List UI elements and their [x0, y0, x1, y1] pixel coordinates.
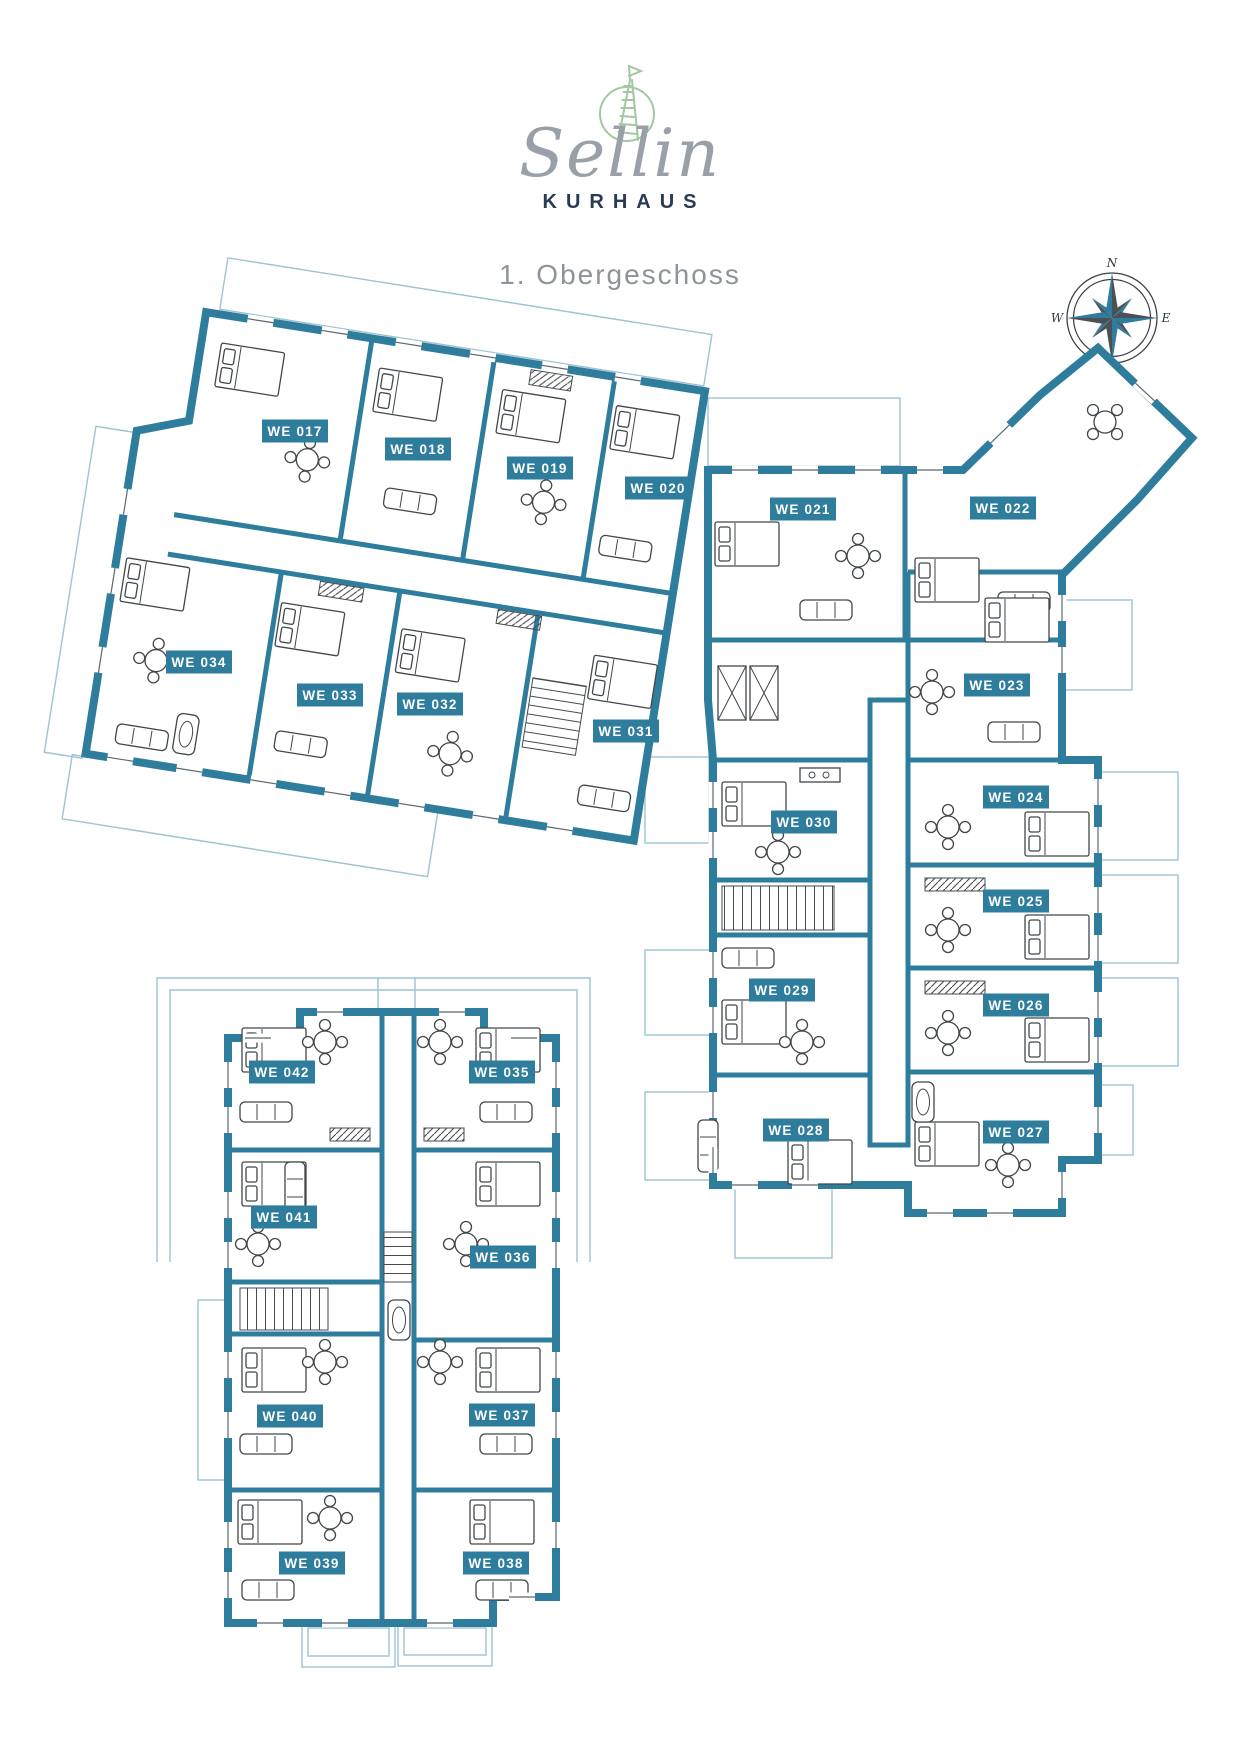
- unit-label-we-038: WE 038: [463, 1552, 529, 1575]
- svg-text:WE 031: WE 031: [598, 724, 653, 739]
- svg-text:WE 034: WE 034: [171, 655, 226, 670]
- floor-plan-page: Sellin KURHAUS 1. Obergeschoss N E S W: [0, 0, 1241, 1754]
- unit-label-we-018: WE 018: [385, 438, 451, 461]
- svg-text:WE 036: WE 036: [475, 1250, 530, 1265]
- brand-logo: Sellin KURHAUS: [519, 66, 721, 213]
- svg-text:WE 035: WE 035: [474, 1065, 529, 1080]
- svg-text:WE 029: WE 029: [754, 983, 809, 998]
- unit-label-we-036: WE 036: [470, 1246, 536, 1269]
- compass-west: W: [1051, 311, 1065, 325]
- svg-text:WE 018: WE 018: [390, 442, 445, 457]
- unit-label-we-033: WE 033: [297, 684, 363, 707]
- stairs-upper-west: [522, 678, 586, 756]
- svg-text:WE 039: WE 039: [284, 1556, 339, 1571]
- upper-wing-rotated: [34, 242, 713, 908]
- brand-name: Sellin: [519, 115, 721, 192]
- unit-label-we-021: WE 021: [770, 498, 836, 521]
- unit-label-we-029: WE 029: [749, 979, 815, 1002]
- svg-text:WE 021: WE 021: [775, 502, 830, 517]
- stairs-lower-corridor: [384, 1232, 412, 1282]
- svg-text:WE 023: WE 023: [969, 678, 1024, 693]
- unit-label-we-026: WE 026: [983, 994, 1049, 1017]
- unit-label-we-020: WE 020: [625, 477, 691, 500]
- svg-text:WE 028: WE 028: [768, 1123, 823, 1138]
- svg-text:WE 042: WE 042: [254, 1065, 309, 1080]
- svg-text:WE 027: WE 027: [988, 1125, 1043, 1140]
- unit-label-we-042: WE 042: [249, 1061, 315, 1084]
- unit-label-we-022: WE 022: [970, 497, 1036, 520]
- compass-east: E: [1161, 311, 1171, 325]
- unit-label-we-017: WE 017: [262, 420, 328, 443]
- unit-label-we-019: WE 019: [507, 457, 573, 480]
- upper-building: [34, 242, 1192, 1258]
- svg-text:WE 041: WE 041: [256, 1210, 311, 1225]
- floor-title: 1. Obergeschoss: [499, 259, 741, 290]
- svg-text:WE 024: WE 024: [988, 790, 1043, 805]
- svg-text:WE 026: WE 026: [988, 998, 1043, 1013]
- svg-text:WE 025: WE 025: [988, 894, 1043, 909]
- elevator-icon: [750, 666, 778, 720]
- stairs-lower-building: [240, 1288, 328, 1330]
- floor-plan-svg: Sellin KURHAUS 1. Obergeschoss N E S W: [0, 0, 1241, 1754]
- unit-label-we-028: WE 028: [763, 1119, 829, 1142]
- stairs-middle-column: [722, 886, 834, 930]
- lightwell: [870, 700, 908, 1145]
- svg-text:WE 019: WE 019: [512, 461, 567, 476]
- unit-label-we-027: WE 027: [983, 1121, 1049, 1144]
- unit-label-we-023: WE 023: [964, 674, 1030, 697]
- svg-text:WE 038: WE 038: [468, 1556, 523, 1571]
- svg-text:WE 017: WE 017: [267, 424, 322, 439]
- unit-label-we-037: WE 037: [469, 1404, 535, 1427]
- unit-label-we-034: WE 034: [166, 651, 232, 674]
- elevator-icon: [718, 666, 746, 720]
- unit-label-we-025: WE 025: [983, 890, 1049, 913]
- compass-north: N: [1106, 256, 1118, 270]
- unit-label-we-030: WE 030: [771, 811, 837, 834]
- brand-subtitle: KURHAUS: [543, 191, 706, 213]
- unit-label-we-039: WE 039: [279, 1552, 345, 1575]
- svg-text:WE 032: WE 032: [402, 697, 457, 712]
- unit-label-we-040: WE 040: [257, 1405, 323, 1428]
- svg-text:WE 037: WE 037: [474, 1408, 529, 1423]
- upper-east-complex: [698, 348, 1192, 1218]
- unit-label-we-041: WE 041: [251, 1206, 317, 1229]
- unit-label-we-024: WE 024: [983, 786, 1049, 809]
- svg-text:WE 033: WE 033: [302, 688, 357, 703]
- unit-label-we-035: WE 035: [469, 1061, 535, 1084]
- svg-text:WE 020: WE 020: [630, 481, 685, 496]
- svg-text:WE 022: WE 022: [975, 501, 1030, 516]
- svg-text:WE 040: WE 040: [262, 1409, 317, 1424]
- unit-label-we-031: WE 031: [593, 720, 659, 743]
- unit-label-we-032: WE 032: [397, 693, 463, 716]
- svg-text:WE 030: WE 030: [776, 815, 831, 830]
